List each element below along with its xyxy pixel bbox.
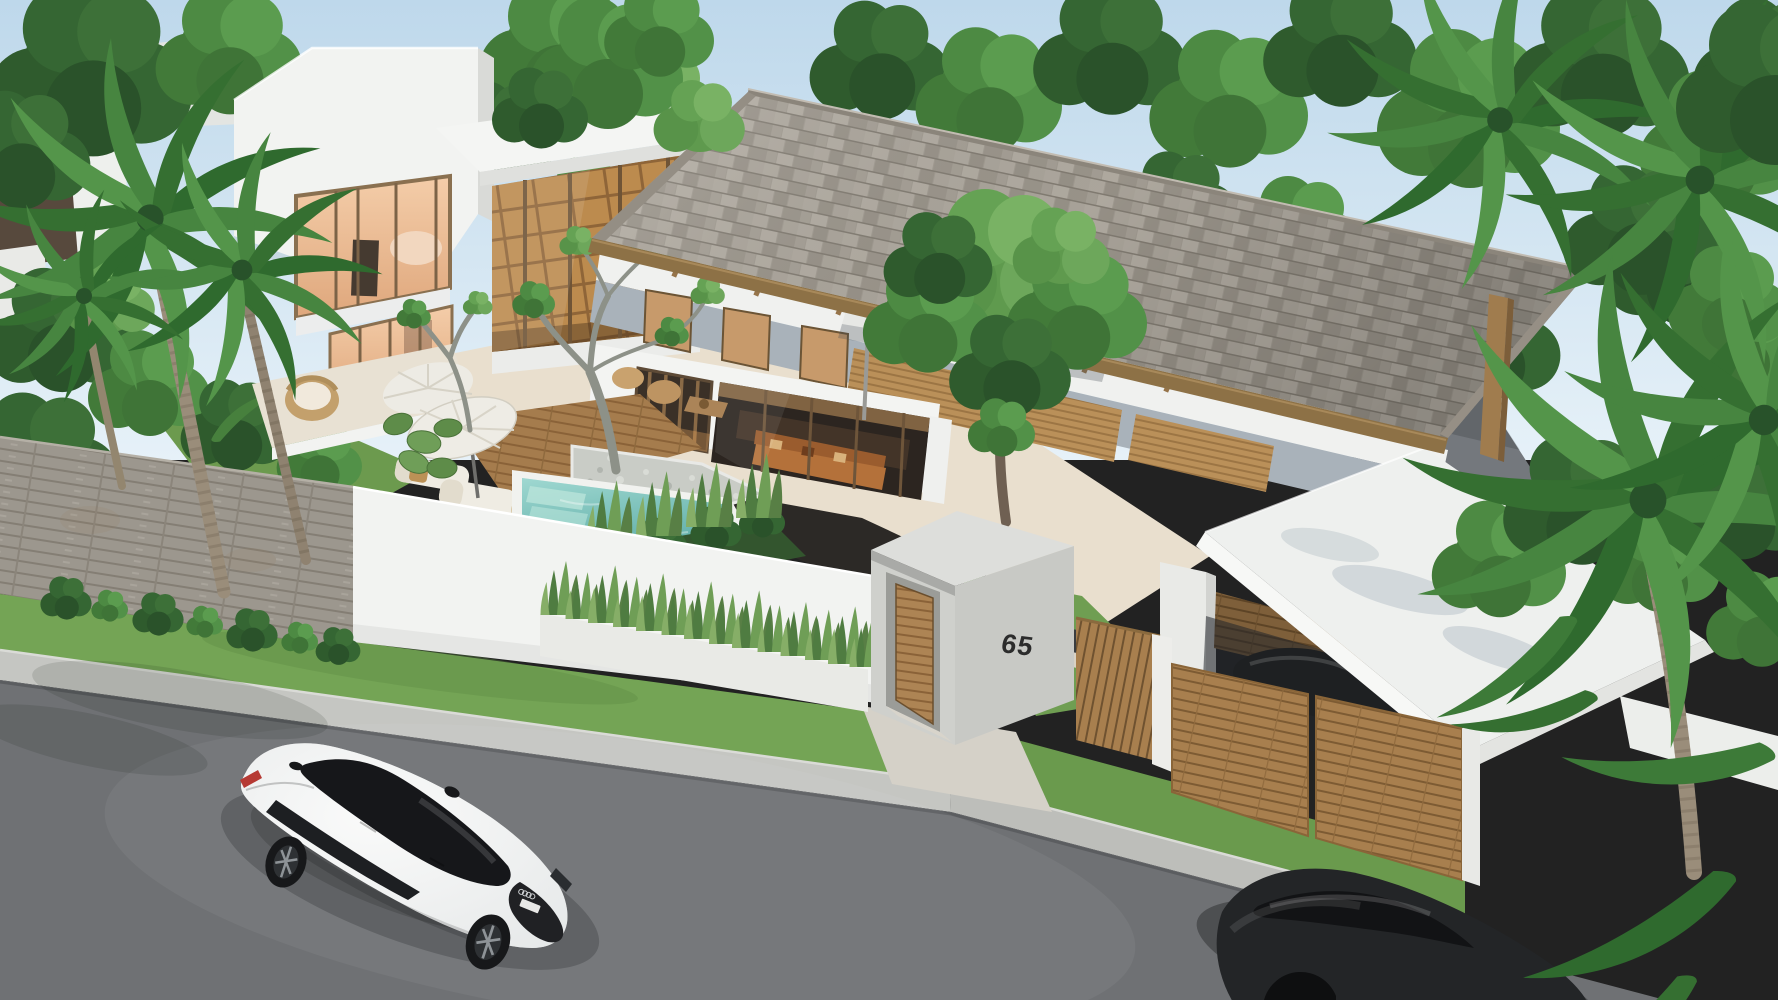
slat-fence [1076,618,1160,762]
dark-car-body [1217,869,1588,1000]
entrance-portal: 65 [871,511,1074,745]
beanbag-1 [612,367,644,389]
gate-post-right [1462,728,1480,886]
gate-post-left [1152,634,1172,772]
bowl [699,399,709,409]
render-canvas: 65 [0,0,1778,1000]
dark-sedan [1183,868,1617,1000]
front-door[interactable] [896,584,933,724]
house-number: 65 [999,628,1037,661]
beanbag-2 [647,380,681,404]
interior-bed [390,231,442,265]
villa-aerial-render: 65 [0,0,1778,1000]
